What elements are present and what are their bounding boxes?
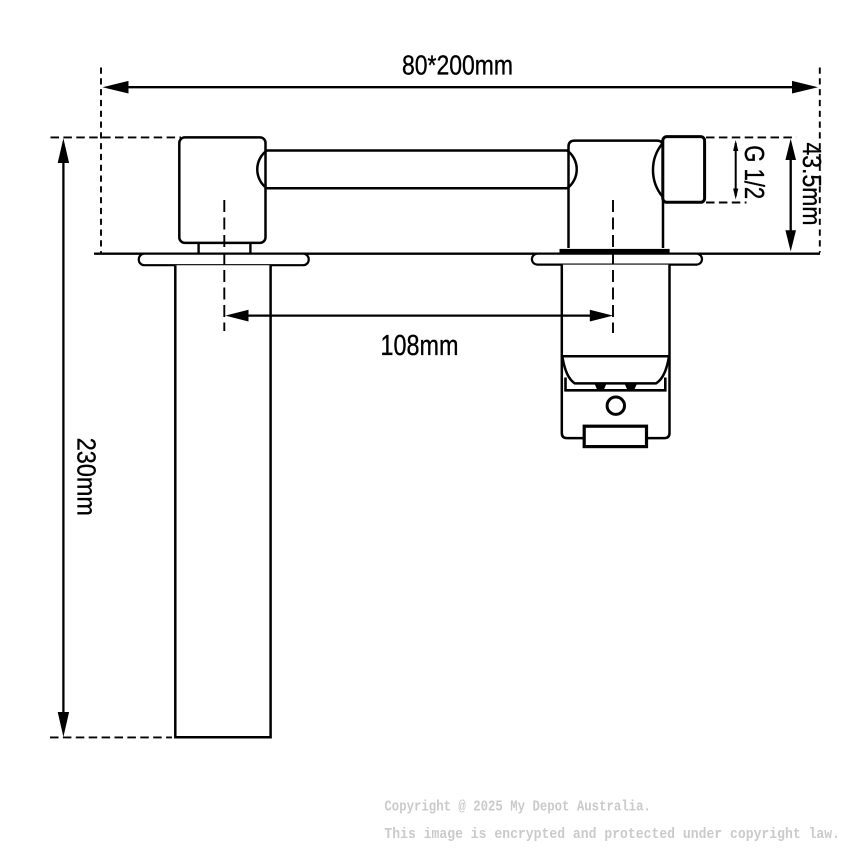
svg-text:Copyright @ 2025 My Depot Aust: Copyright @ 2025 My Depot Australia.	[384, 799, 651, 816]
svg-text:This image is encrypted and pr: This image is encrypted and protected un…	[384, 826, 840, 843]
svg-text:108mm: 108mm	[381, 330, 459, 362]
svg-text:80*200mm: 80*200mm	[402, 50, 513, 81]
svg-text:43.5mm: 43.5mm	[797, 143, 825, 226]
svg-text:G 1/2: G 1/2	[739, 145, 770, 199]
svg-text:230mm: 230mm	[71, 438, 101, 516]
